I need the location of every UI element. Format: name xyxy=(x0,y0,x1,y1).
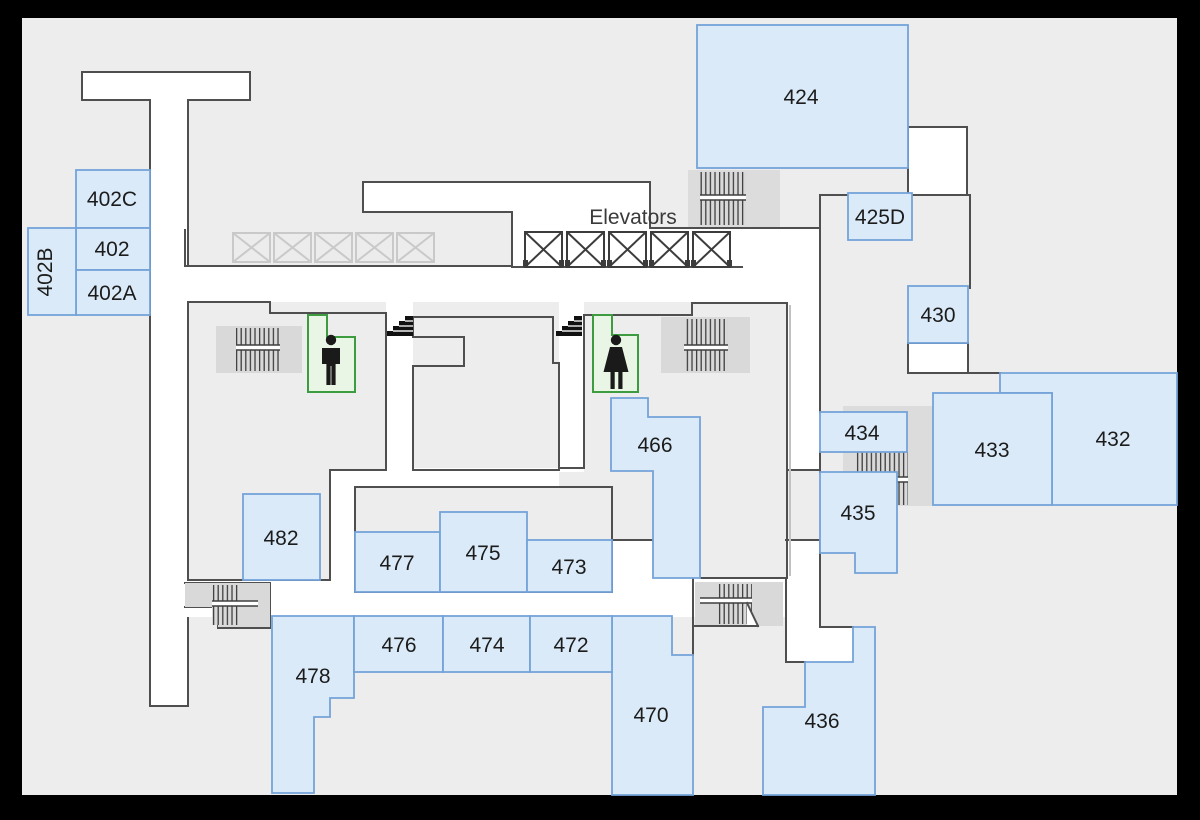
room-label: 402A xyxy=(87,282,136,305)
room-label: 430 xyxy=(920,304,955,327)
elevator-icon xyxy=(565,232,606,267)
room-label: 434 xyxy=(844,422,879,445)
room-433[interactable]: 433 xyxy=(933,393,1052,505)
elevator-icon xyxy=(691,232,732,267)
room-label: 425D xyxy=(855,206,905,229)
room-label: 402B xyxy=(34,247,57,296)
elevator-icon xyxy=(607,232,648,267)
room-label: 470 xyxy=(633,704,668,727)
room-424[interactable]: 424 xyxy=(697,25,908,168)
room-473[interactable]: 473 xyxy=(527,540,612,592)
room-label: 433 xyxy=(974,439,1009,462)
room-label: 424 xyxy=(783,86,818,109)
elevator-icon xyxy=(397,233,434,262)
elevator-icon xyxy=(233,233,270,262)
corridor-main-east-west xyxy=(185,266,820,302)
elevator-icon xyxy=(274,233,311,262)
room-label: 432 xyxy=(1095,428,1130,451)
room-430[interactable]: 430 xyxy=(908,286,968,343)
floor-plan-viewer: Elevators 402C 402 402A 402B 424 425D 43… xyxy=(0,0,1200,820)
room-402A[interactable]: 402A xyxy=(76,270,150,315)
elevator-icon xyxy=(649,232,690,267)
room-402[interactable]: 402 xyxy=(76,228,150,270)
corridor-lower-center xyxy=(355,593,612,617)
stairs-icon xyxy=(661,317,750,373)
room-425D[interactable]: 425D xyxy=(848,193,912,240)
room-label: 402 xyxy=(94,238,129,261)
corridor-right-of-473 xyxy=(613,540,652,617)
room-label: 436 xyxy=(804,710,839,733)
stairs-icon xyxy=(688,170,780,227)
phantom-elevator-bank xyxy=(233,233,434,262)
room-label: 478 xyxy=(295,665,330,688)
corridor-east-of-424 xyxy=(908,127,967,195)
room-label: 476 xyxy=(381,634,416,657)
corridor-pocket-below-430 xyxy=(908,343,968,373)
room-434[interactable]: 434 xyxy=(820,412,907,452)
elevator-icon xyxy=(523,232,564,267)
corridor-north-south-right xyxy=(787,230,820,470)
room-label: 466 xyxy=(637,434,672,457)
stairs-icon xyxy=(695,582,783,626)
room-label: 435 xyxy=(840,502,875,525)
room-472[interactable]: 472 xyxy=(530,616,612,672)
room-label: 482 xyxy=(263,527,298,550)
room-402C[interactable]: 402C xyxy=(76,170,150,228)
room-label: 475 xyxy=(465,542,500,565)
stairs-icon xyxy=(216,326,302,373)
room-402B[interactable]: 402B xyxy=(28,228,76,315)
floor-plan-map: Elevators 402C 402 402A 402B 424 425D 43… xyxy=(0,0,1200,820)
room-label: 474 xyxy=(469,634,504,657)
room-482[interactable]: 482 xyxy=(243,494,320,580)
room-label: 477 xyxy=(379,552,414,575)
room-label: 402C xyxy=(87,188,137,211)
room-label: 473 xyxy=(551,556,586,579)
elevators-label: Elevators xyxy=(589,206,677,229)
room-474[interactable]: 474 xyxy=(443,616,530,672)
elevator-icon xyxy=(315,233,352,262)
elevator-icon xyxy=(356,233,393,262)
room-label: 472 xyxy=(553,634,588,657)
room-476[interactable]: 476 xyxy=(354,616,443,672)
room-475[interactable]: 475 xyxy=(440,512,527,592)
room-477[interactable]: 477 xyxy=(355,532,440,592)
